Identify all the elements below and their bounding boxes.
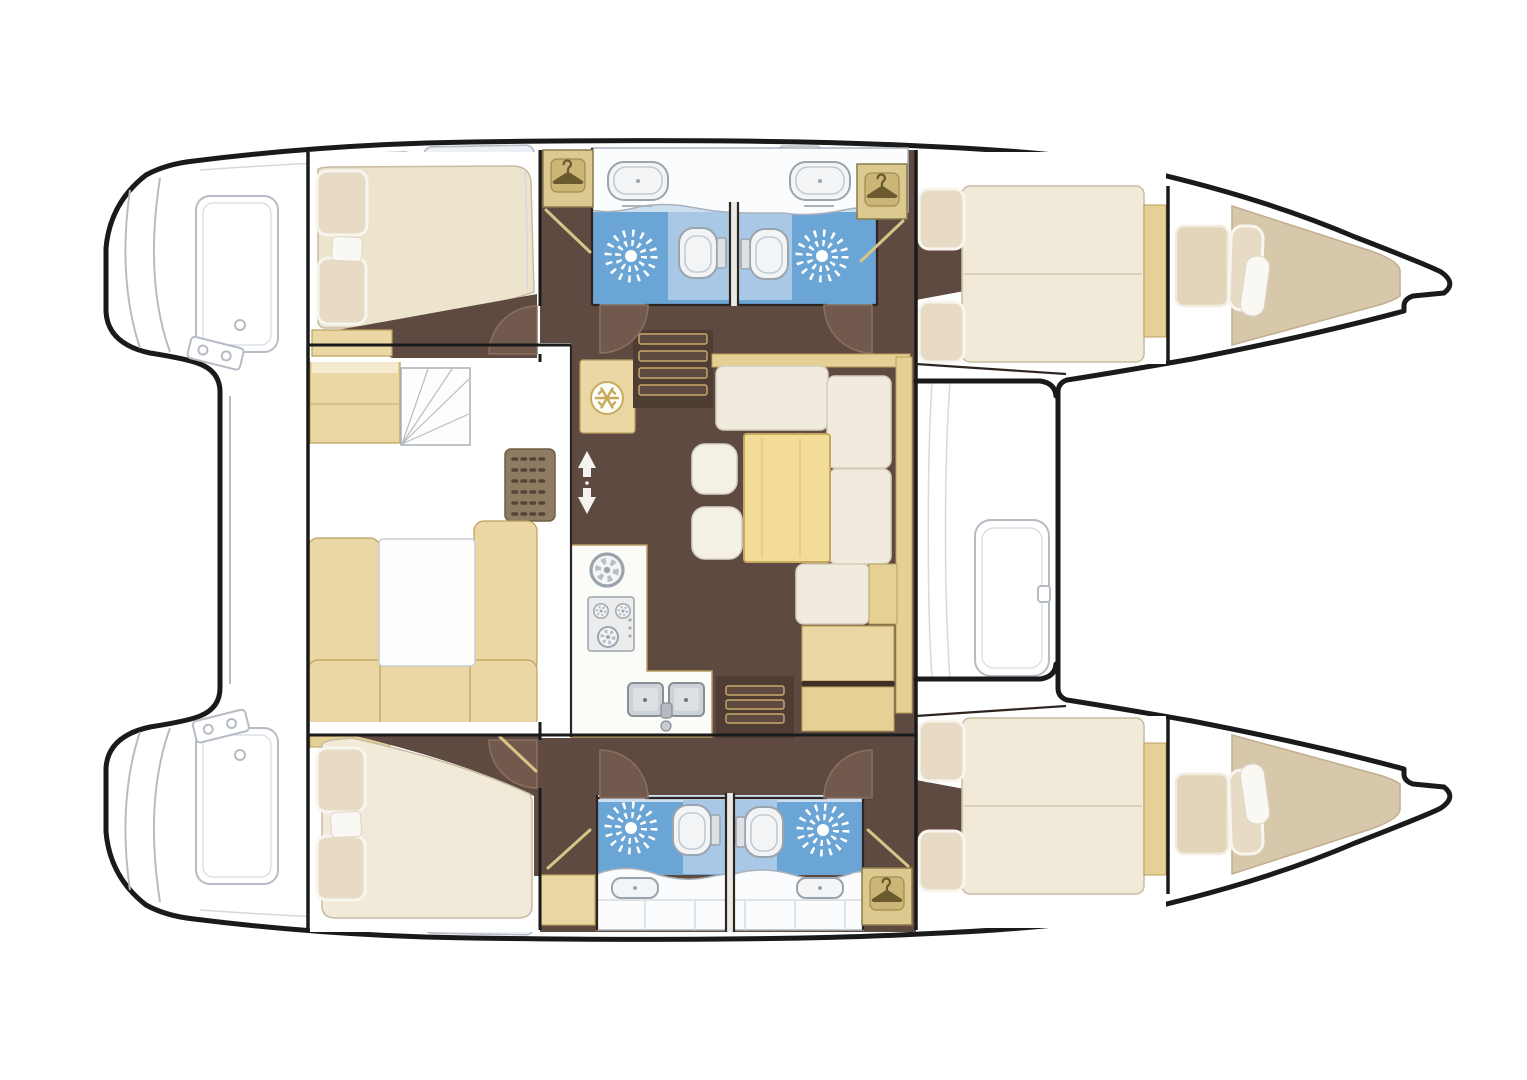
settee-table bbox=[379, 539, 475, 666]
catamaran-floor-plan bbox=[0, 0, 1527, 1080]
port-companionway-stairs bbox=[633, 330, 713, 408]
starboard-companionway-stairs bbox=[716, 676, 794, 738]
storage-cabinet bbox=[540, 875, 595, 925]
starboard-aft-cabin bbox=[310, 722, 540, 932]
pillow bbox=[919, 302, 964, 362]
pillow bbox=[919, 189, 964, 249]
berth-cushion bbox=[1176, 774, 1228, 854]
hanger-locker bbox=[862, 868, 912, 925]
berth-cushion bbox=[1176, 226, 1228, 306]
pillow bbox=[317, 836, 365, 900]
hanger-locker bbox=[857, 164, 907, 219]
foot-bench bbox=[312, 330, 392, 356]
headboard bbox=[1144, 205, 1166, 337]
pillow bbox=[919, 721, 964, 781]
sink-icon bbox=[608, 162, 668, 206]
stool bbox=[692, 444, 737, 494]
stove bbox=[588, 597, 634, 651]
port-aft-cabin bbox=[310, 152, 540, 362]
hanger-locker bbox=[543, 150, 593, 207]
burner-icon bbox=[591, 554, 623, 586]
floor-plan-page bbox=[0, 0, 1527, 1080]
snowflake-icon bbox=[591, 382, 623, 414]
dinette-table bbox=[744, 434, 830, 562]
pillow bbox=[317, 171, 367, 235]
port-forward-cabin bbox=[916, 152, 1166, 364]
forward-settee bbox=[308, 521, 537, 730]
dinette-cabinet bbox=[802, 626, 894, 731]
starboard-forward-cabin bbox=[916, 716, 1166, 928]
pillow bbox=[317, 748, 365, 812]
sink-icon bbox=[612, 878, 658, 898]
sink-icon bbox=[790, 162, 850, 206]
speaker-grille-icon bbox=[505, 449, 555, 521]
sink-icon bbox=[797, 878, 843, 898]
fridge bbox=[580, 360, 635, 433]
faucet-icon bbox=[661, 703, 672, 718]
pillow bbox=[318, 258, 366, 324]
stool bbox=[692, 507, 742, 559]
headboard bbox=[1144, 743, 1166, 875]
starboard-heads bbox=[597, 793, 872, 932]
chart-table bbox=[401, 368, 470, 445]
pillow bbox=[919, 831, 964, 891]
